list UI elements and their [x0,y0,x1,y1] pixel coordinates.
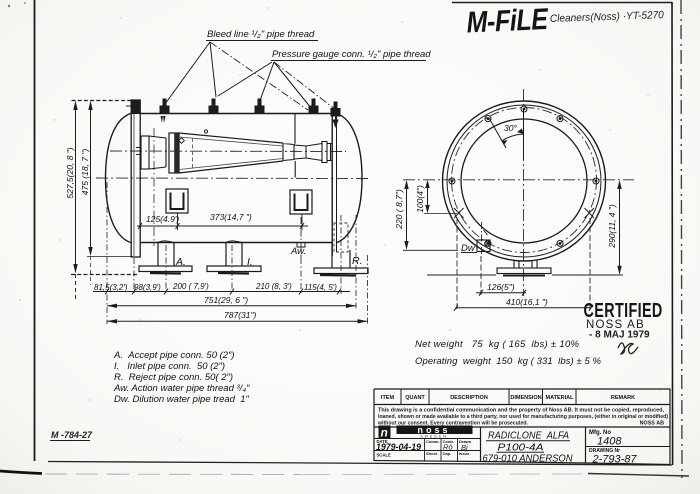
svg-text:A.: A. [175,256,186,268]
svg-text:81,5(3,2′): 81,5(3,2′) [94,283,128,292]
svg-text:679-010 ANDERSON: 679-010 ANDERSON [483,454,574,465]
svg-text:RADICLONE ALFA: RADICLONE ALFA [488,430,569,442]
svg-text:M -784-27: M -784-27 [51,430,93,440]
svg-text:P100-4A: P100-4A [498,442,544,454]
svg-text:Sheet.: Sheet. [426,451,438,456]
svg-text:Cap.: Cap. [443,451,452,456]
svg-text:200 ( 7,9′): 200 ( 7,9′) [172,282,209,291]
svg-text:Aw. Action water pipe thread ³: Aw. Action water pipe thread ³/₄″ [113,383,250,394]
svg-text:527,5(20, 8 "): 527,5(20, 8 ") [65,147,75,198]
svg-text:This drawing is a confidential: This drawing is a confidential communica… [378,408,664,414]
svg-text:Bj: Bj [461,443,468,452]
svg-text:A. Accept pipe conn. 50 (2″): A. Accept pipe conn. 50 (2″) [113,350,235,361]
svg-text:SWEDEN: SWEDEN [420,435,448,439]
svg-text:Bleed line ¹/₂" pipe thread: Bleed line ¹/₂" pipe thread [207,29,315,40]
svg-text:115(4, 5′): 115(4, 5′) [304,283,337,292]
svg-text:210 (8, 3′): 210 (8, 3′) [255,282,292,291]
svg-text:373(14,7 "): 373(14,7 ") [210,212,252,222]
svg-text:Net weight 75 kg ( 165 lbs: Net weight 75 kg ( 165 lbs) ± 10% [415,339,580,350]
svg-text:DIMENSION: DIMENSION [510,395,541,401]
svg-text:1979-04-19: 1979-04-19 [376,442,421,452]
svg-text:290(11, 4 "): 290(11, 4 ") [607,204,617,249]
svg-text:I. Inlet pipe conn. 50 (2″): I. Inlet pipe conn. 50 (2″) [114,361,225,372]
svg-text:410(16,1 "): 410(16,1 ") [506,297,548,307]
svg-text:MATERIAL: MATERIAL [545,395,574,401]
svg-text:QUANT: QUANT [405,395,425,401]
svg-text:1408: 1408 [597,436,622,448]
svg-text:100(4"): 100(4") [415,185,425,213]
svg-text:Comm.: Comm. [426,439,440,444]
svg-text:REMARK: REMARK [611,395,635,401]
svg-text:- 8 MAJ 1979: - 8 MAJ 1979 [589,330,650,341]
svg-text:noss: noss [417,425,450,435]
svg-text:787(31"): 787(31") [224,310,256,320]
svg-text:Rö: Rö [443,443,453,452]
svg-text:Operating weight 150 kg ( 3: Operating weight 150 kg ( 331 lbs) ± 5 % [415,356,602,367]
svg-text:ITEM: ITEM [381,395,395,401]
svg-text:751(29, 6 "): 751(29, 6 ") [204,295,248,305]
svg-text:2-793-87: 2-793-87 [592,454,638,466]
svg-text:30°: 30° [504,123,517,133]
svg-text:Pressure gauge conn. ¹/₂" pipe: Pressure gauge conn. ¹/₂" pipe thread [272,49,431,60]
svg-text:126(5"): 126(5") [487,282,515,292]
svg-text:DESCRIPTION: DESCRIPTION [450,395,488,401]
svg-text:Aw.: Aw. [290,246,306,257]
svg-text:n: n [381,426,388,440]
svg-text:SCALE: SCALE [377,453,391,458]
svg-text:125(4.9′): 125(4.9′) [146,214,179,224]
svg-text:475 (18, 7 "): 475 (18, 7 ") [80,149,90,196]
svg-text:NOSS AB: NOSS AB [640,421,664,427]
svg-text:R.: R. [352,255,363,267]
svg-text:R. Reject pipe conn. 50( 2″): R. Reject pipe conn. 50( 2″) [114,372,233,383]
svg-text:M-FiLE: M-FiLE [466,2,550,39]
svg-text:Dw. Dilution water pipe tread: Dw. Dilution water pipe tread 1″ [114,394,249,405]
svg-text:98(3,9′): 98(3,9′) [134,283,161,292]
svg-text:220 ( 8,7"): 220 ( 8,7") [394,189,404,230]
svg-text:I.: I. [247,256,253,268]
svg-text:loaned, shown or made availabl: loaned, shown or made available to a thi… [378,414,668,420]
